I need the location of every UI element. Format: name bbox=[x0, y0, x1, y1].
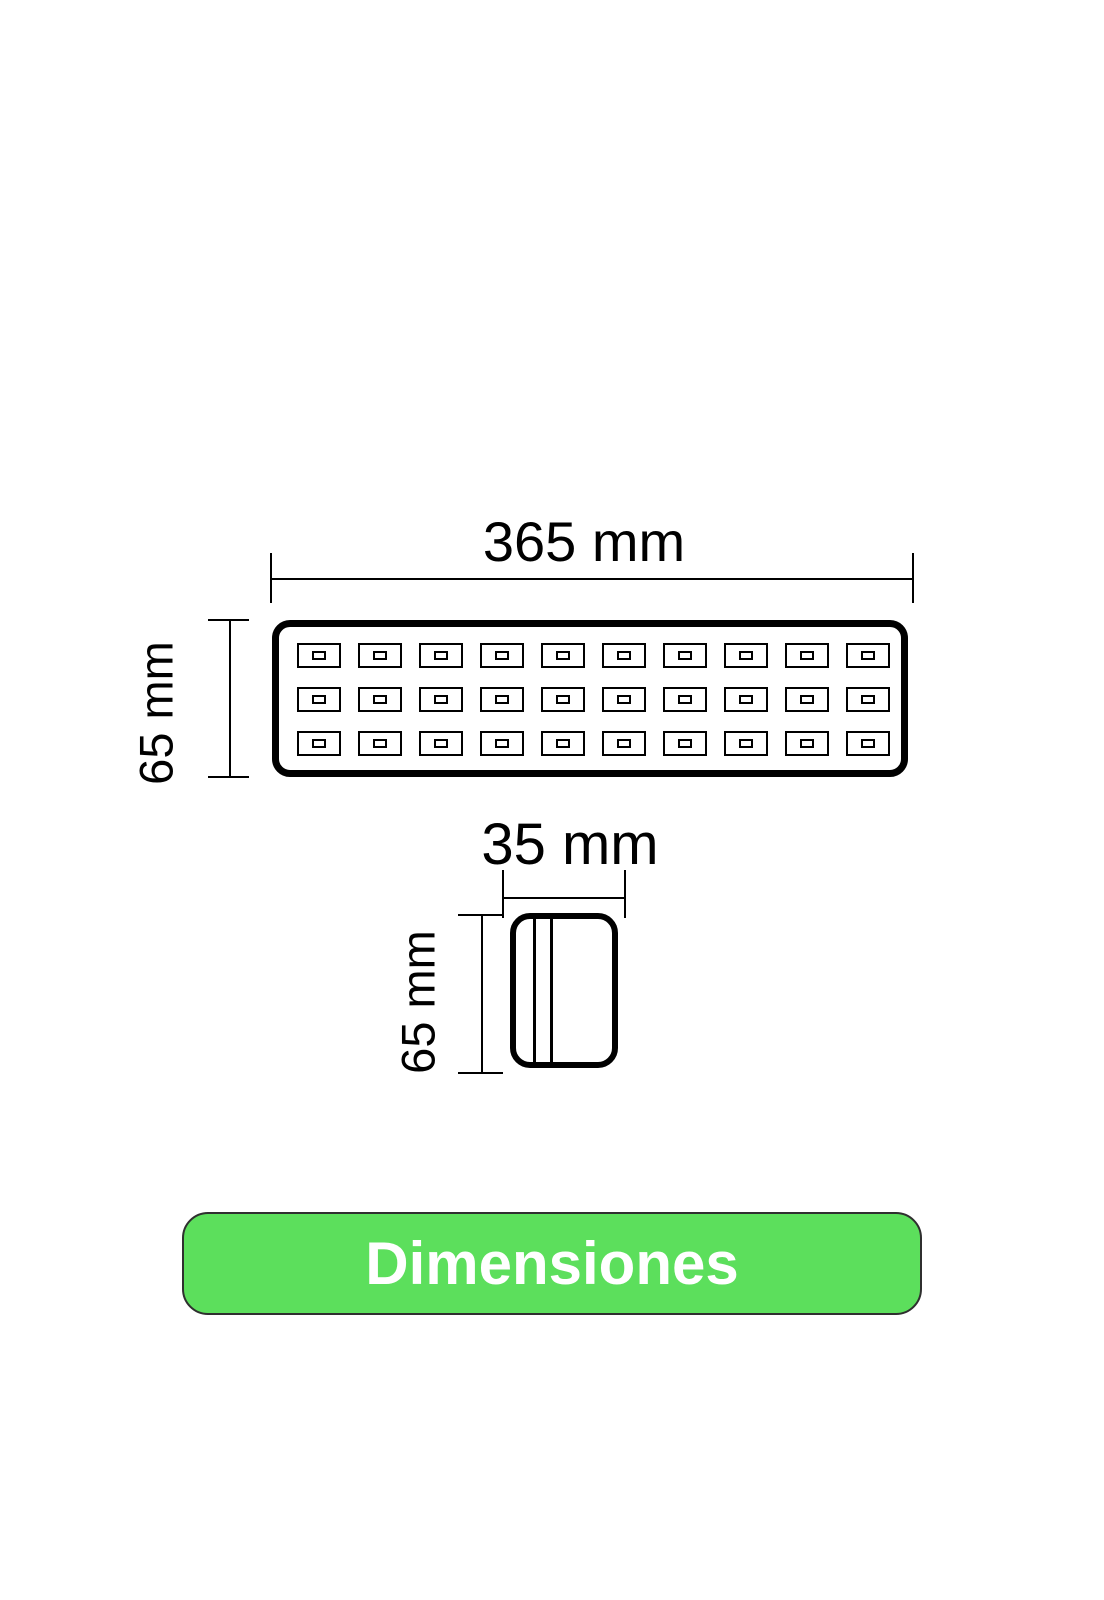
led-cell bbox=[419, 687, 463, 712]
led-emitter bbox=[434, 651, 448, 660]
led-emitter bbox=[556, 695, 570, 704]
led-emitter bbox=[312, 739, 326, 748]
top-view-width-dimension-line bbox=[271, 578, 913, 580]
led-cell bbox=[785, 687, 829, 712]
led-emitter bbox=[617, 651, 631, 660]
led-emitter bbox=[739, 651, 753, 660]
led-cell bbox=[663, 687, 707, 712]
led-cell bbox=[419, 643, 463, 668]
led-cell bbox=[846, 687, 890, 712]
dimensions-diagram: 365 mm 65 mm 35 mm 65 mm Dimensiones bbox=[0, 0, 1104, 1600]
led-emitter bbox=[312, 695, 326, 704]
led-emitter bbox=[617, 695, 631, 704]
led-emitter bbox=[678, 651, 692, 660]
led-emitter bbox=[739, 695, 753, 704]
led-emitter bbox=[495, 695, 509, 704]
side-view-width-tick-left bbox=[502, 870, 504, 918]
side-view-width-tick-right bbox=[624, 870, 626, 918]
side-view-width-label: 35 mm bbox=[481, 816, 658, 874]
led-cell bbox=[785, 731, 829, 756]
led-emitter bbox=[861, 739, 875, 748]
led-emitter bbox=[556, 651, 570, 660]
side-view-height-dimension-line bbox=[481, 915, 483, 1073]
side-view-panel-line-2 bbox=[550, 919, 553, 1062]
led-emitter bbox=[678, 695, 692, 704]
led-emitter bbox=[556, 739, 570, 748]
led-cell bbox=[297, 687, 341, 712]
led-cell bbox=[785, 643, 829, 668]
luminaire-side-view bbox=[510, 913, 618, 1068]
led-cell bbox=[541, 643, 585, 668]
top-view-height-tick-top bbox=[208, 619, 249, 621]
side-view-width-dimension-line bbox=[503, 897, 626, 899]
led-emitter bbox=[434, 739, 448, 748]
led-emitter bbox=[739, 739, 753, 748]
led-emitter bbox=[373, 651, 387, 660]
led-cell bbox=[663, 643, 707, 668]
led-cell bbox=[480, 731, 524, 756]
led-emitter bbox=[495, 739, 509, 748]
led-cell bbox=[602, 687, 646, 712]
top-view-width-tick-right bbox=[912, 553, 914, 603]
led-cell bbox=[297, 643, 341, 668]
led-emitter bbox=[678, 739, 692, 748]
led-cell bbox=[602, 643, 646, 668]
side-view-height-tick-top bbox=[458, 914, 503, 916]
led-cell bbox=[724, 643, 768, 668]
dimensions-button[interactable]: Dimensiones bbox=[182, 1212, 922, 1315]
led-cell bbox=[358, 731, 402, 756]
top-view-width-tick-left bbox=[270, 553, 272, 603]
led-cell bbox=[541, 731, 585, 756]
top-view-height-tick-bottom bbox=[208, 776, 249, 778]
led-cell bbox=[480, 687, 524, 712]
led-emitter bbox=[312, 651, 326, 660]
led-emitter bbox=[800, 651, 814, 660]
led-emitter bbox=[800, 739, 814, 748]
side-view-height-tick-bottom bbox=[458, 1072, 503, 1074]
led-cell bbox=[846, 643, 890, 668]
led-cell bbox=[602, 731, 646, 756]
led-emitter bbox=[373, 695, 387, 704]
side-view-height-label: 65 mm bbox=[395, 930, 442, 1074]
led-emitter bbox=[800, 695, 814, 704]
led-cell bbox=[358, 687, 402, 712]
led-cell bbox=[724, 687, 768, 712]
top-view-height-dimension-line bbox=[229, 620, 231, 778]
led-emitter bbox=[861, 651, 875, 660]
led-cell bbox=[297, 731, 341, 756]
led-emitter bbox=[617, 739, 631, 748]
top-view-height-label: 65 mm bbox=[133, 641, 180, 785]
top-view-width-label: 365 mm bbox=[483, 514, 685, 570]
led-emitter bbox=[434, 695, 448, 704]
led-cell bbox=[846, 731, 890, 756]
led-cell bbox=[663, 731, 707, 756]
led-cell bbox=[480, 643, 524, 668]
led-emitter bbox=[495, 651, 509, 660]
led-cell bbox=[358, 643, 402, 668]
led-emitter bbox=[373, 739, 387, 748]
led-cell bbox=[541, 687, 585, 712]
led-emitter bbox=[861, 695, 875, 704]
led-cell bbox=[724, 731, 768, 756]
led-cell bbox=[419, 731, 463, 756]
side-view-panel-line-1 bbox=[533, 919, 536, 1062]
led-grid bbox=[297, 643, 890, 756]
